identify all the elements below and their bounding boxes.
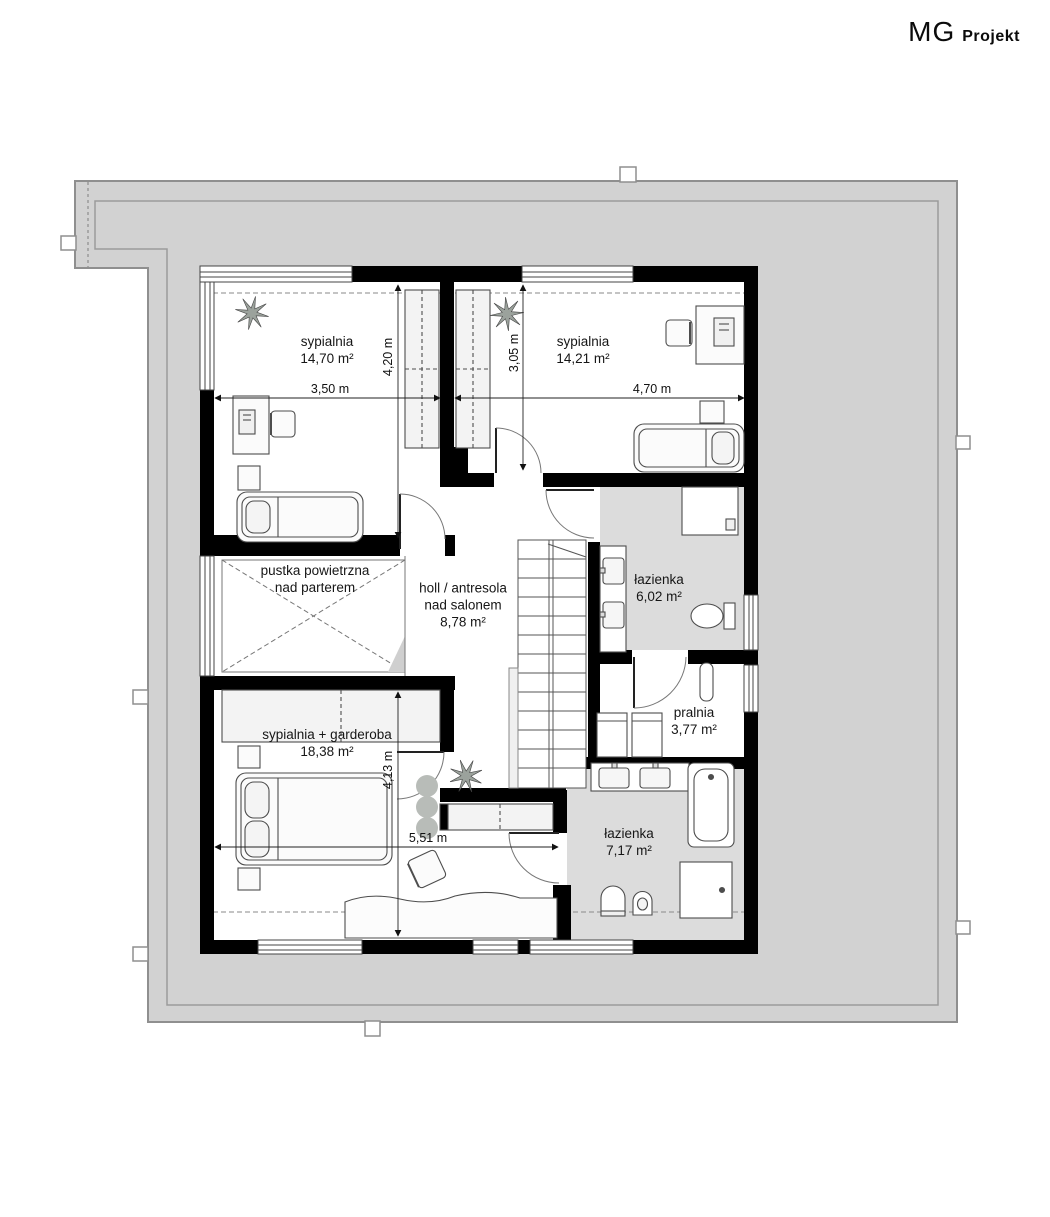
room-label-void: pustka powietrzna nad parterem [261, 563, 370, 597]
bed-single-left [237, 492, 363, 542]
toilet [691, 603, 735, 629]
bed-single-right [634, 424, 744, 472]
room-name-2: nad salonem [419, 598, 507, 615]
desk-curved [345, 892, 557, 938]
desk [696, 306, 744, 364]
roof-tab-right-2 [956, 921, 970, 934]
room-area: 14,21 m² [556, 351, 609, 368]
radiator [700, 663, 713, 701]
window-right-laundry [744, 665, 758, 712]
room-label-laundry: pralnia 3,77 m² [671, 705, 717, 739]
room-label-bedroom-left: sypialnia 14,70 m² [300, 334, 353, 368]
roof-tab-left-mid [133, 690, 148, 704]
roof-tab-left-top [61, 236, 76, 250]
floorplan-svg [0, 0, 1050, 1217]
room-name: łazienka [634, 572, 684, 589]
dim-label-bedroom-right-height: 3,05 m [507, 334, 521, 372]
window-top-right [522, 266, 633, 282]
room-area: 3,77 m² [671, 722, 717, 739]
window-bottom-2 [473, 940, 518, 954]
bathtub [688, 763, 734, 847]
dim-label-bedroom-left-width: 3,50 m [311, 382, 349, 396]
desk [233, 396, 269, 454]
nightstand [238, 868, 260, 890]
room-area: 7,17 m² [604, 843, 654, 860]
room-label-bedroom-right: sypialnia 14,21 m² [556, 334, 609, 368]
room-area: 14,70 m² [300, 351, 353, 368]
wardrobe-right-bedroom [456, 290, 490, 448]
nightstand [238, 746, 260, 768]
shower [682, 487, 738, 535]
room-name: sypialnia [556, 334, 609, 351]
bidet [633, 892, 652, 915]
stairs-handrail [509, 668, 518, 788]
nightstand [700, 401, 724, 423]
room-name: sypialnia [300, 334, 353, 351]
sink-counter [591, 763, 689, 791]
pillow [245, 782, 269, 818]
toilet [601, 886, 625, 916]
window-right-bathroom [744, 595, 758, 650]
roof-tab-left-bottom [133, 947, 148, 961]
sink [600, 602, 624, 628]
room-area: 6,02 m² [634, 589, 684, 606]
room-name: holl / antresola [419, 581, 507, 598]
window-bottom-1 [258, 940, 362, 954]
stairs [509, 540, 586, 788]
dim-label-bedroom-master-height: 4,13 m [381, 751, 395, 789]
shower [680, 862, 732, 918]
dryer [632, 713, 662, 757]
room-label-bathroom-top: łazienka 6,02 m² [634, 572, 684, 606]
sink [600, 558, 624, 584]
room-label-bathroom-bottom: łazienka 7,17 m² [604, 826, 654, 860]
brand-logo: MG Projekt [908, 16, 1020, 48]
roof-tab-bottom [365, 1021, 380, 1036]
window-left-void [200, 556, 214, 676]
room-name: sypialnia + garderoba [262, 727, 391, 744]
room-label-bedroom-master: sypialnia + garderoba 18,38 m² [262, 727, 391, 761]
bed-double [236, 773, 392, 865]
sink-counter [600, 546, 626, 652]
room-name: pralnia [671, 705, 717, 722]
pillow [245, 821, 269, 857]
wardrobe-corridor [440, 804, 553, 830]
room-label-hall: holl / antresola nad salonem 8,78 m² [419, 581, 507, 632]
chair [271, 411, 295, 437]
washing-machine [597, 713, 627, 757]
dim-label-bedroom-master-width: 5,51 m [409, 831, 447, 845]
window-bottom-3 [530, 940, 633, 954]
pillow [246, 501, 270, 533]
room-name: pustka powietrzna [261, 563, 370, 580]
wardrobe-left-bedroom [405, 290, 439, 448]
dim-label-bedroom-left-height: 4,20 m [381, 338, 395, 376]
room-name-2: nad parterem [261, 580, 370, 597]
plant-icon [416, 775, 438, 839]
room-area: 18,38 m² [262, 744, 391, 761]
room-name: łazienka [604, 826, 654, 843]
nightstand [238, 466, 260, 490]
dim-label-bedroom-right-width: 4,70 m [633, 382, 671, 396]
chair [666, 320, 692, 346]
brand-logo-projekt: Projekt [962, 28, 1020, 46]
brand-logo-mg: MG [908, 16, 955, 48]
roof-tab-right-1 [956, 436, 970, 449]
window-left-bedroom [200, 282, 214, 390]
pillow [712, 432, 734, 464]
floorplan-canvas: MG Projekt sypialnia 14,70 m² sypialnia … [0, 0, 1050, 1217]
room-area: 8,78 m² [419, 614, 507, 631]
roof-tab-top [620, 167, 636, 182]
window-top-left [200, 266, 352, 282]
